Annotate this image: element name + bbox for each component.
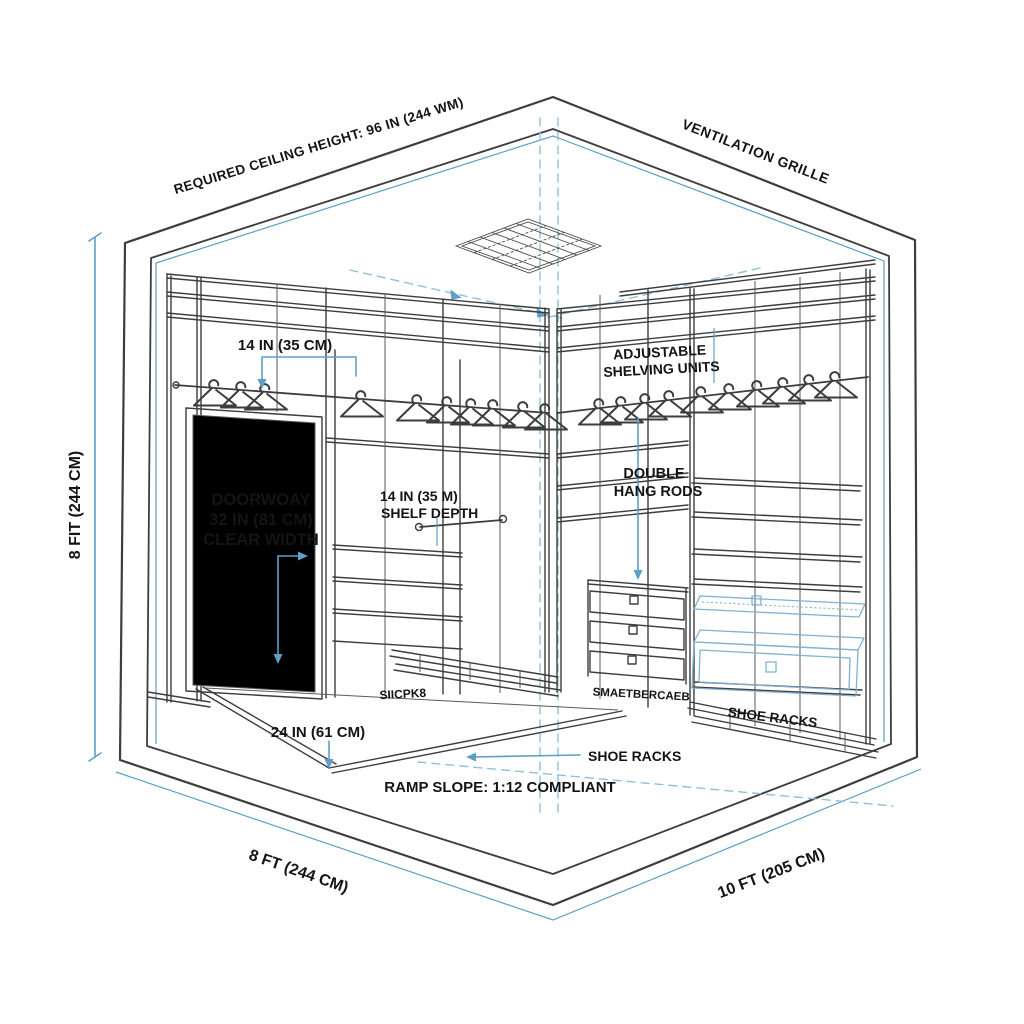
label-top-shelf-width: 14 IN (35 CM)	[238, 337, 332, 354]
svg-text:HANG RODS: HANG RODS	[614, 484, 703, 500]
drawer-unit	[588, 580, 688, 684]
clothes-hangers-right	[579, 372, 857, 424]
label-shelf-depth: 14 IN (35 M) SHELF DEPTH	[380, 488, 478, 521]
label-dim-depth: 8 FT (244 CM)	[247, 847, 351, 897]
blue-drawer-unit	[692, 596, 865, 696]
ceiling-vent-grille	[456, 219, 601, 273]
label-shoe-racks-right: SHOE RACKS	[727, 705, 818, 731]
label-doorway: DOORWOAY 32 IN (81 CM) CLEAR WIDTH	[203, 491, 318, 549]
svg-text:14 IN (35 M): 14 IN (35 M)	[380, 488, 458, 504]
svg-text:DOORWOAY: DOORWOAY	[211, 491, 310, 509]
arrow-down-icon	[634, 570, 643, 580]
label-dim-height: 8 FIT (244 CM)	[67, 451, 84, 559]
arrow-left-icon	[466, 753, 476, 762]
svg-text:SHELF DEPTH: SHELF DEPTH	[381, 505, 478, 521]
label-shoe-racks-center: SHOE RACKS	[588, 748, 681, 764]
shelf-column-right	[692, 478, 862, 695]
diagram-canvas: REQUIRED CEILING HEIGHT: 96 IN (244 WM) …	[0, 0, 1024, 1024]
shoe-racks-pointer	[466, 753, 580, 762]
svg-text:DOUBLE: DOUBLE	[623, 466, 685, 482]
svg-text:32 IN (81 CM): 32 IN (81 CM)	[209, 511, 313, 529]
label-dim-width: 10 FT (205 CM)	[716, 846, 828, 902]
label-garbled-left: SIICPK8	[379, 686, 427, 702]
label-ceiling-height: REQUIRED CEILING HEIGHT: 96 IN (244 WM)	[172, 94, 465, 197]
label-ramp-slope: RAMP SLOPE: 1:12 COMPLIANT	[384, 779, 615, 796]
right-shelving-unit	[557, 260, 878, 758]
label-garbled-right: SMAETBERCAEB	[592, 686, 690, 703]
closet-blueprint-diagram: REQUIRED CEILING HEIGHT: 96 IN (244 WM) …	[0, 0, 1024, 1024]
dimension-ceiling-height-line	[89, 233, 101, 761]
hidden-edge-guides	[350, 118, 893, 818]
dimension-shelf-width-bracket	[258, 357, 357, 389]
svg-text:CLEAR WIDTH: CLEAR WIDTH	[203, 531, 318, 549]
label-ramp-width: 24 IN (61 CM)	[271, 724, 365, 741]
label-adjustable-shelving: ADJUSTABLE SHELVING UNITS	[602, 341, 720, 380]
hanging-rod-right	[557, 377, 868, 413]
ramp-width-pointer	[325, 741, 334, 769]
